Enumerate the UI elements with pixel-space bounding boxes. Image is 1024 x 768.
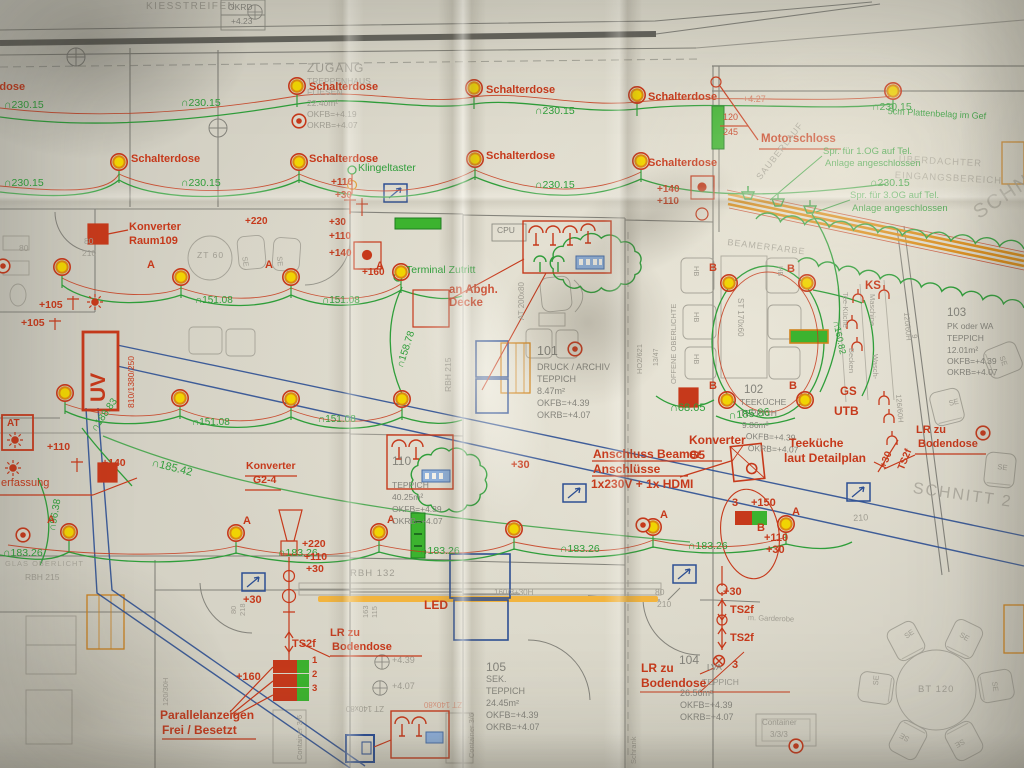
- a-1: A: [147, 260, 155, 271]
- hb-3: HB: [693, 354, 701, 364]
- plus30-box2: +30: [511, 460, 530, 471]
- plus110-kl: +110: [331, 178, 353, 188]
- m-garderobe: m. Garderobe: [748, 614, 795, 623]
- m230-2a: ∩230.15: [4, 178, 44, 189]
- dim80218-a: 80: [230, 606, 238, 614]
- ind-3: 3: [312, 684, 317, 694]
- kit-becken: Becken: [848, 348, 856, 373]
- room105-okfb: OKFB=+4.39: [486, 711, 539, 720]
- anschluss-1: Anschluss Beamer: [593, 448, 701, 460]
- okrd-level: +4.23: [231, 17, 253, 26]
- room104-m2: 26.56m²: [680, 689, 713, 698]
- room102-m2: 9.86m²: [742, 421, 768, 430]
- anschluss-3: 1x230V + 1x HDMI: [591, 478, 693, 490]
- b-1: B: [709, 263, 717, 274]
- folded-electrical-floor-plan-photo: KIESSTREIFENOKRD+4.23ZUGANGTREPPENHAUSFL…: [0, 0, 1024, 768]
- teekueche-1: Teeküche: [789, 437, 843, 449]
- schalterdose-3: Schalterdose: [486, 85, 555, 96]
- room110-nr: 110: [392, 455, 411, 467]
- glas-oberlicht: GLAS OBERLICHT: [5, 560, 84, 568]
- m158: ∩158.78: [396, 330, 417, 369]
- room110-okrb: OKRB=+4.07: [392, 517, 443, 526]
- plus110-b: +110: [304, 552, 327, 563]
- m151-d: ∩151.08: [318, 415, 356, 425]
- konv-g24-2: G2-4: [253, 475, 276, 486]
- lr-zu-3a: LR zu: [330, 628, 360, 639]
- konv-g5-1: Konverter: [689, 434, 746, 446]
- se-t4: SE: [991, 681, 1000, 692]
- room104-lva: LVA: [707, 663, 722, 672]
- se-r3: SE: [997, 463, 1008, 472]
- schalterdose-1: Schalterdose: [0, 82, 25, 93]
- ts2f-1: TS2f: [292, 639, 316, 650]
- dim12060-b: 126/60H: [895, 394, 905, 423]
- b-4: B: [789, 381, 797, 392]
- schalterdose-5: Schalterdose: [131, 154, 200, 165]
- cl-30: +30: [766, 545, 785, 556]
- gs: GS: [840, 387, 857, 399]
- m230-1c: ∩230.15: [535, 106, 575, 117]
- room103-nr: 103: [947, 308, 966, 320]
- m151-b: ∩151.08: [322, 296, 360, 306]
- dim-245: 245: [723, 128, 738, 137]
- hb-2: HB: [693, 312, 701, 322]
- room103-name: PK oder WA: [947, 322, 993, 331]
- zugang: ZUGANG: [307, 62, 364, 74]
- zt140-b: ZT 140x80: [424, 700, 462, 708]
- m183-a: ∩183.26: [3, 548, 43, 559]
- konverter109-2: Raum109: [129, 236, 178, 247]
- plus140-tr: +140: [657, 185, 680, 195]
- room105-okrb: OKRB=+4.07: [486, 723, 540, 732]
- bt120: BT 120: [918, 685, 954, 695]
- cx-3: 3: [732, 660, 738, 671]
- room105-name: SEK.: [486, 675, 507, 684]
- dim210-b: 210: [82, 249, 96, 258]
- parallel-2: Frei / Besetzt: [162, 724, 237, 736]
- a-2: A: [265, 260, 273, 271]
- room101-nr: 101: [537, 345, 558, 358]
- b-2: B: [787, 264, 795, 275]
- rbh215-b: RBH 215: [444, 358, 453, 393]
- dim210-c: 210: [657, 600, 671, 609]
- terminal-zutritt: Terminal Zutritt: [406, 265, 475, 276]
- room101-okfb: OKFB=+4.39: [537, 399, 590, 408]
- room102-nr: 102: [744, 385, 763, 397]
- dim1347: 13/47: [653, 348, 660, 366]
- plus30-kl: +30: [335, 191, 352, 201]
- uv-dim: 810/1380/250: [127, 356, 136, 408]
- ts2f-2: TS2f: [897, 448, 914, 472]
- room101-name: DRUCK / ARCHIV: [537, 363, 610, 372]
- dim80-b: 80: [84, 237, 93, 246]
- spr3-a: Spr. für 3.OG auf Tel.: [850, 191, 939, 201]
- m185-42: ∩185.42: [150, 458, 193, 479]
- zugang-m2: 22.40m²: [307, 99, 338, 108]
- lr-zu-2b: Bodendose: [641, 677, 706, 689]
- plus30-t: +30: [329, 218, 346, 228]
- m183-d: ∩183.26: [560, 544, 600, 555]
- konverter109-1: Konverter: [129, 222, 181, 233]
- m183-c: ∩183.26: [420, 546, 460, 557]
- plus160-t: +160: [362, 268, 385, 278]
- se-r2: SE: [998, 355, 1008, 367]
- plan-labels: KIESSTREIFENOKRD+4.23ZUGANGTREPPENHAUSFL…: [0, 0, 1024, 768]
- container36-a: Container 3/6: [296, 715, 304, 760]
- level-427: +4.27: [743, 95, 766, 104]
- schrank: Schrank: [630, 736, 638, 764]
- cl-3: 3: [732, 498, 738, 509]
- plus110-tr: +110: [657, 197, 679, 207]
- plus30-c: +30: [723, 587, 742, 598]
- at200: AT 200x80: [518, 282, 526, 320]
- at-label: AT: [7, 419, 20, 429]
- plus220-b: +220: [302, 539, 326, 550]
- cl-150: +150: [751, 498, 776, 509]
- anschluss-2: Anschlüsse: [593, 463, 660, 475]
- plus30-lb: +30: [243, 595, 262, 606]
- dim210-r: 210: [853, 513, 868, 523]
- dim163: 163: [362, 605, 370, 618]
- plus140-t: +140: [329, 249, 352, 259]
- a-b4: A: [660, 510, 668, 521]
- schalterdose-8: Schalterdose: [648, 158, 717, 169]
- dim12030: 120/30H: [162, 678, 170, 706]
- m151-a: ∩151.08: [195, 296, 233, 306]
- room103-okrb: OKRB=+4.07: [947, 368, 998, 377]
- room103-okfb: OKFB=+4.39: [947, 357, 997, 366]
- lr-zu-1a: LR zu: [916, 425, 946, 436]
- kit-wasch: Wasch-: [872, 354, 880, 379]
- dim80-a: 80: [19, 244, 28, 253]
- se-t5: SE: [898, 731, 910, 743]
- cpu: CPU: [497, 226, 515, 235]
- uv: UV: [88, 373, 109, 402]
- container333-b: 3/3/3: [770, 731, 788, 739]
- a-b2: A: [243, 516, 251, 527]
- utb: UTB: [834, 405, 859, 417]
- schalterdose-2: Schalterdose: [309, 82, 378, 93]
- konv-g24-1: Konverter: [246, 461, 296, 472]
- plus110-l: +110: [47, 442, 70, 453]
- room105-nr: 105: [486, 661, 506, 673]
- room101-m2: 8.47m²: [537, 387, 565, 396]
- plattenbelag: 5cm Plattenbelag im Gef: [888, 107, 987, 121]
- ho2-621: HO2/621: [636, 344, 644, 374]
- lvl439-b: +4.39: [392, 656, 415, 665]
- room104-nr: 104: [679, 654, 699, 666]
- klingeltaster: Klingeltaster: [358, 163, 416, 174]
- dim80-c: 80: [655, 588, 664, 597]
- m68: ∩68.05: [670, 403, 705, 414]
- m151-c: ∩151.08: [192, 418, 230, 428]
- m183-e: ∩183.26: [688, 541, 728, 552]
- ts2f-4: TS2f: [730, 633, 754, 644]
- a-b5: A: [792, 507, 800, 518]
- room104-okrb: OKRB=+4.07: [680, 713, 734, 722]
- anabgh-2: Decke: [449, 298, 483, 310]
- se-2: SE: [276, 256, 284, 267]
- okrd: OKRD: [228, 3, 253, 12]
- plus140-l: +140: [102, 458, 126, 469]
- ind-2: 2: [312, 670, 317, 680]
- room102-name: TEEKÜCHE: [740, 398, 786, 407]
- a-b1: A: [47, 515, 55, 526]
- room105-belag: TEPPICH: [486, 687, 525, 696]
- motorschloss: Motorschloss: [761, 134, 836, 146]
- room105-m2: 24.45m²: [486, 699, 519, 708]
- beamerfarbe: BEAMERFARBE: [727, 238, 806, 257]
- kit-tee: Tee-Küche: [842, 292, 850, 328]
- dim16030: 160/3+30H: [494, 589, 533, 597]
- erfassung: erfassung: [1, 478, 49, 489]
- plus220-t: +220: [245, 217, 268, 227]
- plus110-t: +110: [329, 232, 351, 242]
- dim9-a: 9: [911, 334, 919, 339]
- m230-1a: ∩230.15: [4, 100, 44, 111]
- plus105-b: +105: [21, 318, 45, 329]
- cl-110: +110: [764, 533, 788, 544]
- m230-2c: ∩230.15: [535, 180, 575, 191]
- konv-g5-2: G5: [689, 449, 705, 461]
- m230-1b: ∩230.15: [181, 98, 221, 109]
- led: LED: [424, 599, 448, 611]
- anabgh-1: an Abgh.: [449, 285, 498, 297]
- lr-zu-3b: Bodendose: [332, 642, 392, 653]
- eingangsbereich: EINGANGSBEREICH: [895, 171, 1003, 186]
- b-3: B: [709, 381, 717, 392]
- rbh215-a: RBH 215: [25, 573, 60, 582]
- container36-b: Container 3/6: [468, 713, 476, 758]
- se-t1: SE: [903, 628, 916, 640]
- hb-1: HB: [693, 266, 701, 276]
- room101-okrb: OKRB=+4.07: [537, 411, 591, 420]
- room110-belag: TEPPICH: [392, 481, 429, 490]
- se-r1: SE: [948, 398, 960, 408]
- room103-m2: 12.01m²: [947, 346, 978, 355]
- kit-masch: Maschine: [869, 294, 877, 326]
- rbh132: RBH 132: [350, 569, 396, 579]
- ks: KS: [865, 281, 881, 293]
- room103-belag: TEPPICH: [947, 334, 984, 343]
- room101-belag: TEPPICH: [537, 375, 576, 384]
- plus30-r: +30: [879, 450, 895, 469]
- zugang-okrb: OKRB=+4.07: [307, 121, 358, 130]
- hb-4: HB: [777, 266, 785, 276]
- lr-zu-2a: LR zu: [641, 662, 674, 674]
- se-t2: SE: [958, 631, 970, 643]
- se-t3: SE: [872, 675, 880, 686]
- kiesstreifen: KIESSTREIFEN: [146, 2, 236, 12]
- se-1: SE: [241, 256, 250, 267]
- offene-oberlichte: OFFENE OBERLICHTE: [670, 304, 678, 384]
- m188: ∩188.83: [90, 397, 120, 434]
- room110-okfb: OKFB=+4.39: [392, 505, 442, 514]
- room104-belag: TEPPICH: [702, 678, 739, 687]
- se-t6: SE: [954, 738, 966, 750]
- dim115: 115: [371, 606, 379, 618]
- sauberlauf: SAUBERLAUF: [755, 121, 805, 182]
- schalterdose-4: Schalterdose: [648, 92, 717, 103]
- plus105-a: +105: [39, 300, 63, 311]
- plus160-b: +160: [236, 672, 261, 683]
- spr3-b: Anlage angeschlossen: [852, 204, 948, 214]
- zt60: ZT 60: [197, 251, 224, 260]
- zt140-a: ZT 140x80: [346, 704, 384, 712]
- room110-m2: 40.25m²: [392, 493, 423, 502]
- plus30-b: +30: [306, 564, 324, 575]
- room104-okfb: OKFB=+4.39: [680, 701, 733, 710]
- zugang-okfb: OKFB=+4.19: [307, 110, 357, 119]
- parallel-1: Parallelanzeigen: [160, 709, 254, 721]
- teekueche-2: laut Detailplan: [784, 452, 866, 464]
- schalterdose-7: Schalterdose: [486, 151, 555, 162]
- lr-zu-1b: Bodendose: [918, 439, 978, 450]
- schnitt-2: SCHNITT 2: [912, 481, 1014, 511]
- ind-1: 1: [312, 656, 317, 666]
- container333-a: Container: [762, 719, 797, 727]
- lvl407-b: +4.07: [392, 682, 415, 691]
- m230-2b: ∩230.15: [181, 178, 221, 189]
- st170: ST 170x60: [736, 298, 744, 337]
- dim-120: 120: [723, 113, 738, 122]
